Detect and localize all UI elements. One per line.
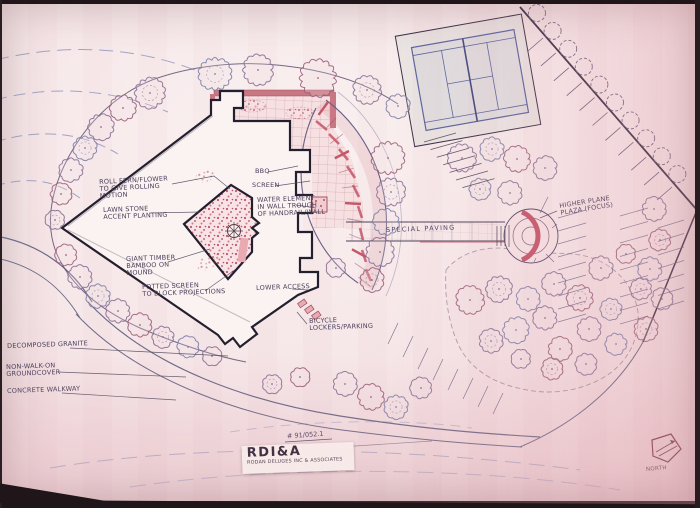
site-plan-photo: ROLL FERN/FLOWER TO GIVE ROLLING MOTION … — [0, 0, 700, 508]
annotation-groundcover: NON-WALK-ON GROUNDCOVER — [6, 362, 70, 379]
photo-edge-right — [695, 0, 700, 508]
annotation-lawn-stone: LAWN STONE ACCENT PLANTING — [103, 205, 173, 222]
annotation-bicycle-lockers: BICYCLE LOCKERS/PARKING — [309, 316, 379, 333]
tennis-court — [395, 14, 541, 147]
annotation-screen: SCREEN — [252, 182, 279, 189]
annotation-giant-timber: GIANT TIMBER BAMBOO ON MOUND — [126, 254, 183, 278]
annotation-water-element: WATER ELEMENT IN WALL TROUGH OF HANDRAIL… — [257, 194, 330, 218]
hedge-row — [529, 5, 686, 183]
annotation-bbq: BBQ — [255, 168, 270, 175]
photo-edge-top — [0, 0, 700, 4]
north-arrow — [652, 434, 681, 462]
annotation-roll-fern: ROLL FERN/FLOWER TO GIVE ROLLING MOTION — [99, 175, 172, 200]
photo-edge-left — [0, 0, 2, 508]
site-plan-drawing — [0, 0, 700, 508]
title-block: RDI&A RODAN DELUGES INC & ASSOCIATES — [242, 442, 355, 474]
